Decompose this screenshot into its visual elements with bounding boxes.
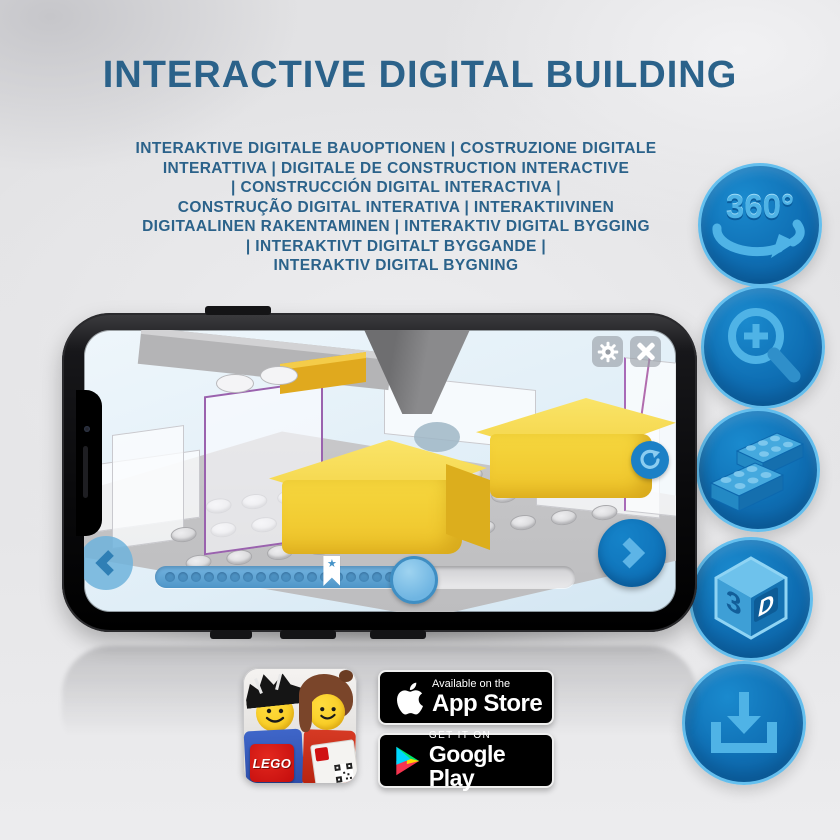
page-subtitle: INTERAKTIVE DIGITALE BAUOPTIONEN | COSTR…	[100, 139, 692, 276]
feature-zoom-badge	[701, 285, 825, 409]
settings-button[interactable]	[592, 336, 623, 367]
feature-download-badge	[682, 661, 806, 785]
yellow-brick-front-2	[490, 434, 652, 498]
earpiece-speaker	[83, 446, 88, 498]
page-title: INTERACTIVE DIGITAL BUILDING	[0, 54, 840, 97]
zoom-in-icon	[704, 288, 822, 406]
previous-step-button[interactable]	[84, 536, 133, 590]
wheel-arch-piece	[414, 422, 460, 452]
app-store-tagline: Available on the	[432, 679, 542, 691]
phone-volume-button-2	[280, 630, 336, 639]
feature-brick-badge	[696, 408, 820, 532]
phone-notch	[76, 390, 102, 536]
chevron-right-icon	[619, 537, 645, 569]
stud	[260, 366, 298, 385]
apple-icon	[394, 680, 424, 716]
chevron-left-icon	[95, 550, 117, 576]
app-screen: ★	[84, 330, 676, 612]
progress-dots	[165, 572, 395, 582]
phone-side-button	[205, 306, 271, 315]
boy-hair	[243, 669, 302, 709]
lego-app-icon[interactable]: LEGO	[243, 668, 357, 783]
app-store-badge[interactable]: Available on the App Store	[378, 670, 554, 725]
app-store-name: App Store	[432, 691, 542, 716]
next-step-button[interactable]	[598, 519, 666, 587]
girl-head	[309, 694, 345, 730]
qr-code	[334, 763, 354, 783]
step-progress-bar[interactable]: ★	[155, 566, 575, 588]
lego-logo: LEGO	[250, 744, 294, 782]
phone-power-button	[370, 630, 426, 639]
phone-volume-button	[210, 630, 252, 639]
google-play-name: Google Play	[429, 742, 552, 790]
360-rotate-icon	[701, 166, 819, 284]
booklet-lego-corner	[315, 747, 330, 762]
feature-3d-badge: 3 D	[689, 537, 813, 661]
instructions-booklet	[310, 739, 357, 783]
feature-360-badge: 360°	[698, 163, 822, 287]
progress-thumb[interactable]	[390, 556, 438, 604]
progress-fill	[155, 566, 411, 588]
gear-icon	[597, 341, 619, 363]
yellow-brick-front	[282, 480, 462, 554]
brick-icon	[699, 411, 817, 529]
rotate-arrow-icon	[638, 448, 662, 472]
close-button[interactable]	[630, 336, 661, 367]
phone-mockup: ★	[62, 313, 697, 632]
rotate-reset-button[interactable]	[631, 441, 669, 479]
download-icon	[685, 664, 803, 782]
google-play-icon	[392, 743, 423, 779]
poster-canvas: INTERACTIVE DIGITAL BUILDING INTERAKTIVE…	[0, 0, 840, 840]
stud	[216, 374, 254, 393]
front-camera	[84, 426, 90, 432]
girl-hair-bun	[339, 670, 353, 682]
3d-cube-icon: 3 D	[692, 540, 810, 658]
google-play-badge[interactable]: GET IT ON Google Play	[378, 733, 554, 788]
